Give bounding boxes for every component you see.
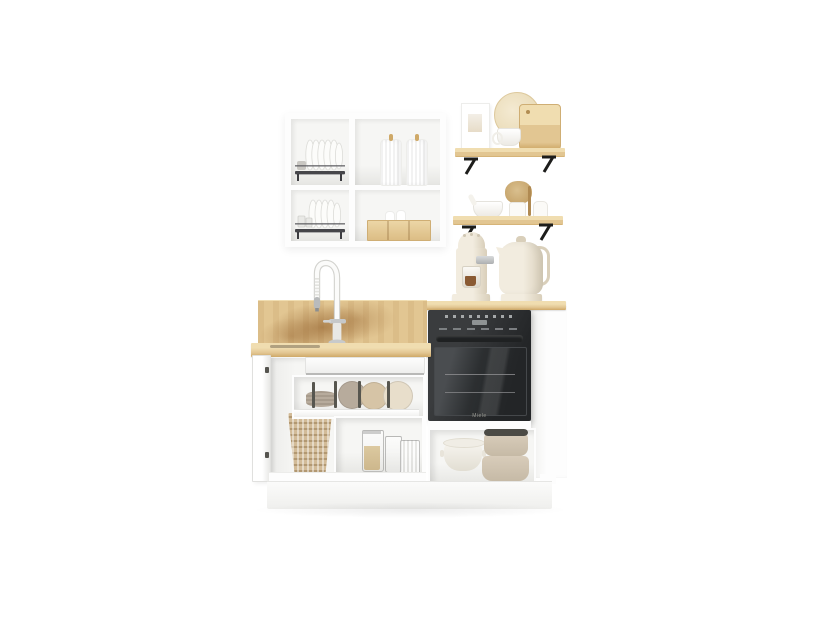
espresso-machine xyxy=(452,232,492,303)
pestle xyxy=(467,194,477,207)
ceramic-canister xyxy=(406,139,428,186)
glass-reflection xyxy=(435,348,526,415)
dish-rack-icon xyxy=(291,119,349,185)
built-in-oven: Miele xyxy=(428,310,531,421)
white-pot-lid xyxy=(443,438,485,448)
white-pot xyxy=(444,442,482,471)
upper-wall-shelf xyxy=(453,90,567,176)
wooden-spoon xyxy=(528,186,531,216)
picture-frame-art xyxy=(468,114,482,132)
divider-peg xyxy=(387,381,390,408)
door-hinge xyxy=(265,367,269,373)
dish-rack-icon xyxy=(291,190,349,241)
glass-jar xyxy=(400,440,420,475)
open-cabinet-door xyxy=(252,355,271,482)
oven-unit-worktop xyxy=(425,301,566,310)
oven-brand-label: Miele xyxy=(428,413,531,419)
cutting-board-hole xyxy=(526,110,530,114)
beige-pot-lower xyxy=(482,456,529,481)
divider-peg xyxy=(334,381,337,408)
kettle-spout xyxy=(496,247,506,256)
beige-pot-lid xyxy=(484,429,528,436)
oven-display xyxy=(472,320,487,325)
electric-kettle xyxy=(498,236,550,303)
oven-rack-line xyxy=(445,374,515,375)
grain-fill xyxy=(364,446,380,470)
machine-body xyxy=(456,248,487,295)
machine-knob xyxy=(470,233,473,236)
oven-icon-row xyxy=(445,315,513,318)
crate-slat xyxy=(387,221,389,240)
jar-drawer xyxy=(334,416,424,477)
stacked-plates xyxy=(306,391,336,407)
canister-knob xyxy=(389,134,393,141)
wicker-basket xyxy=(287,413,333,472)
beige-pot-upper xyxy=(484,434,528,456)
divider-peg xyxy=(312,382,315,408)
crate-slat xyxy=(408,221,410,240)
grain-jar xyxy=(362,430,384,472)
jar-lid xyxy=(363,431,381,434)
coffee-liquid xyxy=(465,276,476,286)
plate-drawer xyxy=(292,375,425,419)
oven-unit-shelf-rail xyxy=(428,421,531,428)
shelf-bracket-icon xyxy=(463,157,481,176)
oven-handle xyxy=(436,335,523,342)
picture-frame xyxy=(461,103,490,151)
kitchen-set-photo: Miele xyxy=(0,0,840,630)
wall-cabinet-compartment-top-left xyxy=(291,119,349,185)
wall-cabinet-compartment-bottom-right xyxy=(355,190,440,241)
door-hinge xyxy=(265,452,269,458)
sink-rim xyxy=(270,345,320,348)
canister-knob xyxy=(415,134,419,141)
machine-knob xyxy=(477,234,480,237)
wall-cabinet-compartment-top-right xyxy=(355,119,440,185)
ground-shadow xyxy=(252,502,568,518)
pot-drawer xyxy=(428,428,536,487)
divider-peg xyxy=(358,381,361,408)
machine-knob xyxy=(463,234,466,237)
oven-door-glass xyxy=(434,347,527,416)
kettle-body xyxy=(499,242,543,295)
oven-rack-line xyxy=(445,392,515,393)
wall-cabinet-compartment-bottom-left xyxy=(291,190,349,241)
rect-cutting-board xyxy=(519,104,561,150)
ceramic-canister xyxy=(380,139,402,186)
sink-worktop xyxy=(251,343,431,357)
top-drawer-front xyxy=(305,357,425,374)
wooden-crate xyxy=(367,220,431,241)
cup-handle xyxy=(492,132,503,145)
shelf-bracket-icon xyxy=(541,155,559,174)
coffee-cup xyxy=(497,128,521,146)
gooseneck-faucet-icon xyxy=(300,256,352,348)
portafilter xyxy=(476,256,494,264)
machine-dome xyxy=(458,232,485,249)
glass-carafe xyxy=(462,266,481,288)
wall-cabinet xyxy=(285,113,446,247)
oven-touch-controls xyxy=(439,328,520,330)
pot-handle xyxy=(440,450,444,457)
